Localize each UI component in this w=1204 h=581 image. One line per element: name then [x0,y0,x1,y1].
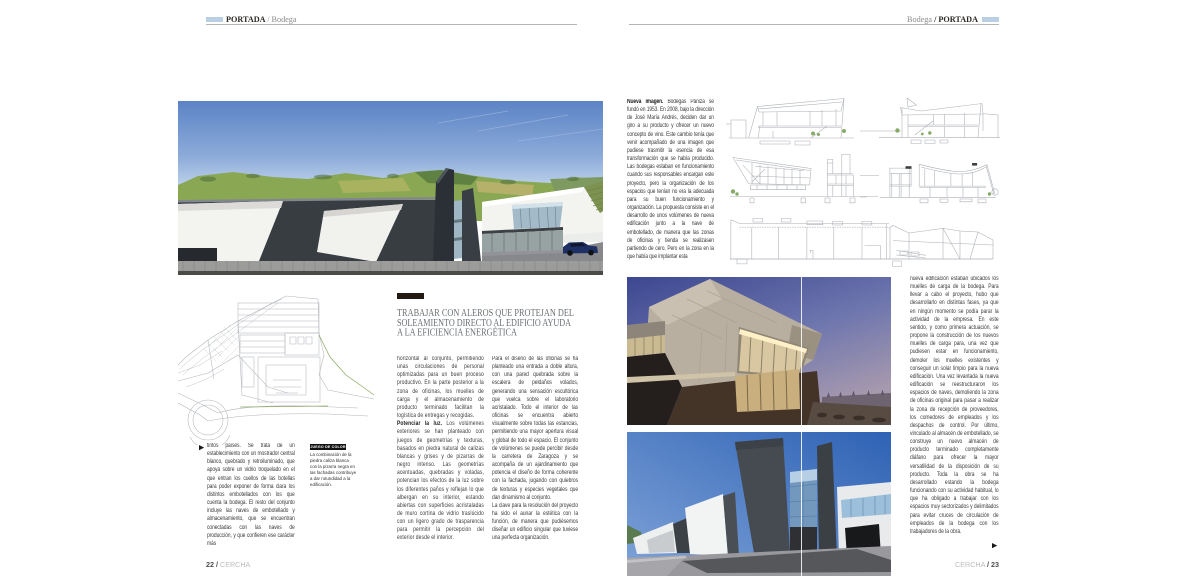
svg-text:A LA EFICIENCIA ENERGÉTICA: A LA EFICIENCIA ENERGÉTICA [397,327,517,339]
